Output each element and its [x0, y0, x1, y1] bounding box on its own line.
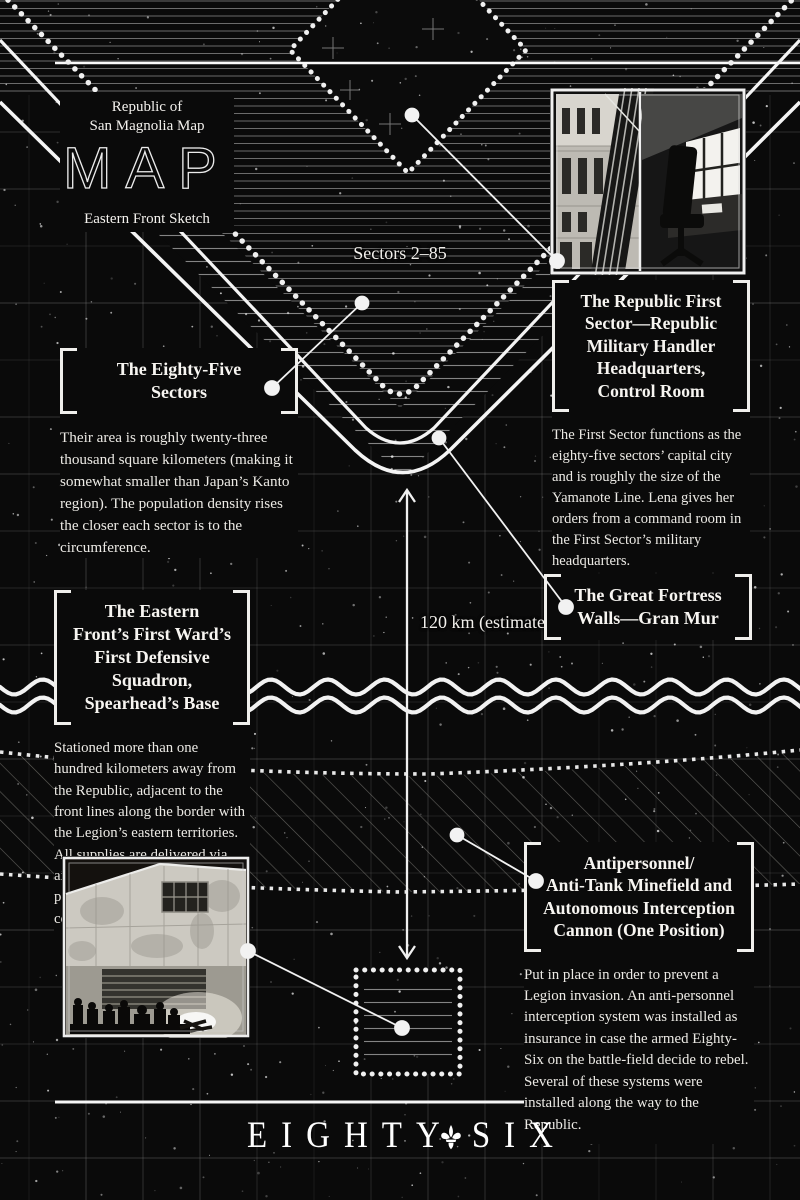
minefield-title: Antipersonnel/ Anti-Tank Minefield and A…	[524, 842, 754, 952]
gran-mur-callout: The Great Fortress Walls—Gran Mur	[544, 574, 752, 640]
minefield-callout: Antipersonnel/ Anti-Tank Minefield and A…	[524, 842, 754, 1144]
map-subtitle: Eastern Front Sketch	[60, 211, 234, 228]
first-sector-photo	[550, 88, 746, 275]
spearhead-base-photo-art	[62, 856, 250, 1038]
logo-word-six: SIX	[472, 1116, 567, 1157]
eighty-five-sectors-body: Their area is roughly twenty-three thous…	[60, 427, 298, 558]
first-sector-callout: The Republic First Sector—Republic Milit…	[552, 280, 750, 572]
minefield-body: Put in place in order to prevent a Legio…	[524, 965, 754, 1137]
map-page: Republic of San Magnolia Map MAP Eastern…	[0, 0, 800, 1200]
first-sector-title: The Republic First Sector—Republic Milit…	[552, 280, 750, 412]
map-big-title: MAP	[63, 136, 231, 201]
map-title-block: Republic of San Magnolia Map MAP Eastern…	[60, 92, 234, 232]
first-sector-body: The First Sector functions as the eighty…	[552, 425, 750, 572]
spearhead-base-title: The Eastern Front’s First Ward’s First D…	[54, 590, 250, 725]
cannon-position-square	[356, 970, 460, 1074]
sectors-range-label: Sectors 2–85	[330, 243, 470, 264]
distance-label: 120 km (estimate)	[420, 612, 551, 633]
eighty-five-sectors-title: The Eighty-Five Sectors	[60, 348, 298, 414]
logo-word-eighty: EIGHTY	[247, 1116, 454, 1157]
first-sector-photo-art	[550, 88, 746, 275]
spearhead-base-photo	[62, 856, 250, 1038]
map-big-title-art: MAP	[61, 136, 233, 202]
gran-mur-title: The Great Fortress Walls—Gran Mur	[544, 574, 752, 640]
eighty-five-sectors-callout: The Eighty-Five Sectors Their area is ro…	[60, 348, 298, 558]
map-kicker-line2: San Magnolia Map	[60, 117, 234, 136]
series-logo: EIGHTY SIX	[0, 1118, 800, 1155]
map-kicker-line1: Republic of	[60, 98, 234, 117]
